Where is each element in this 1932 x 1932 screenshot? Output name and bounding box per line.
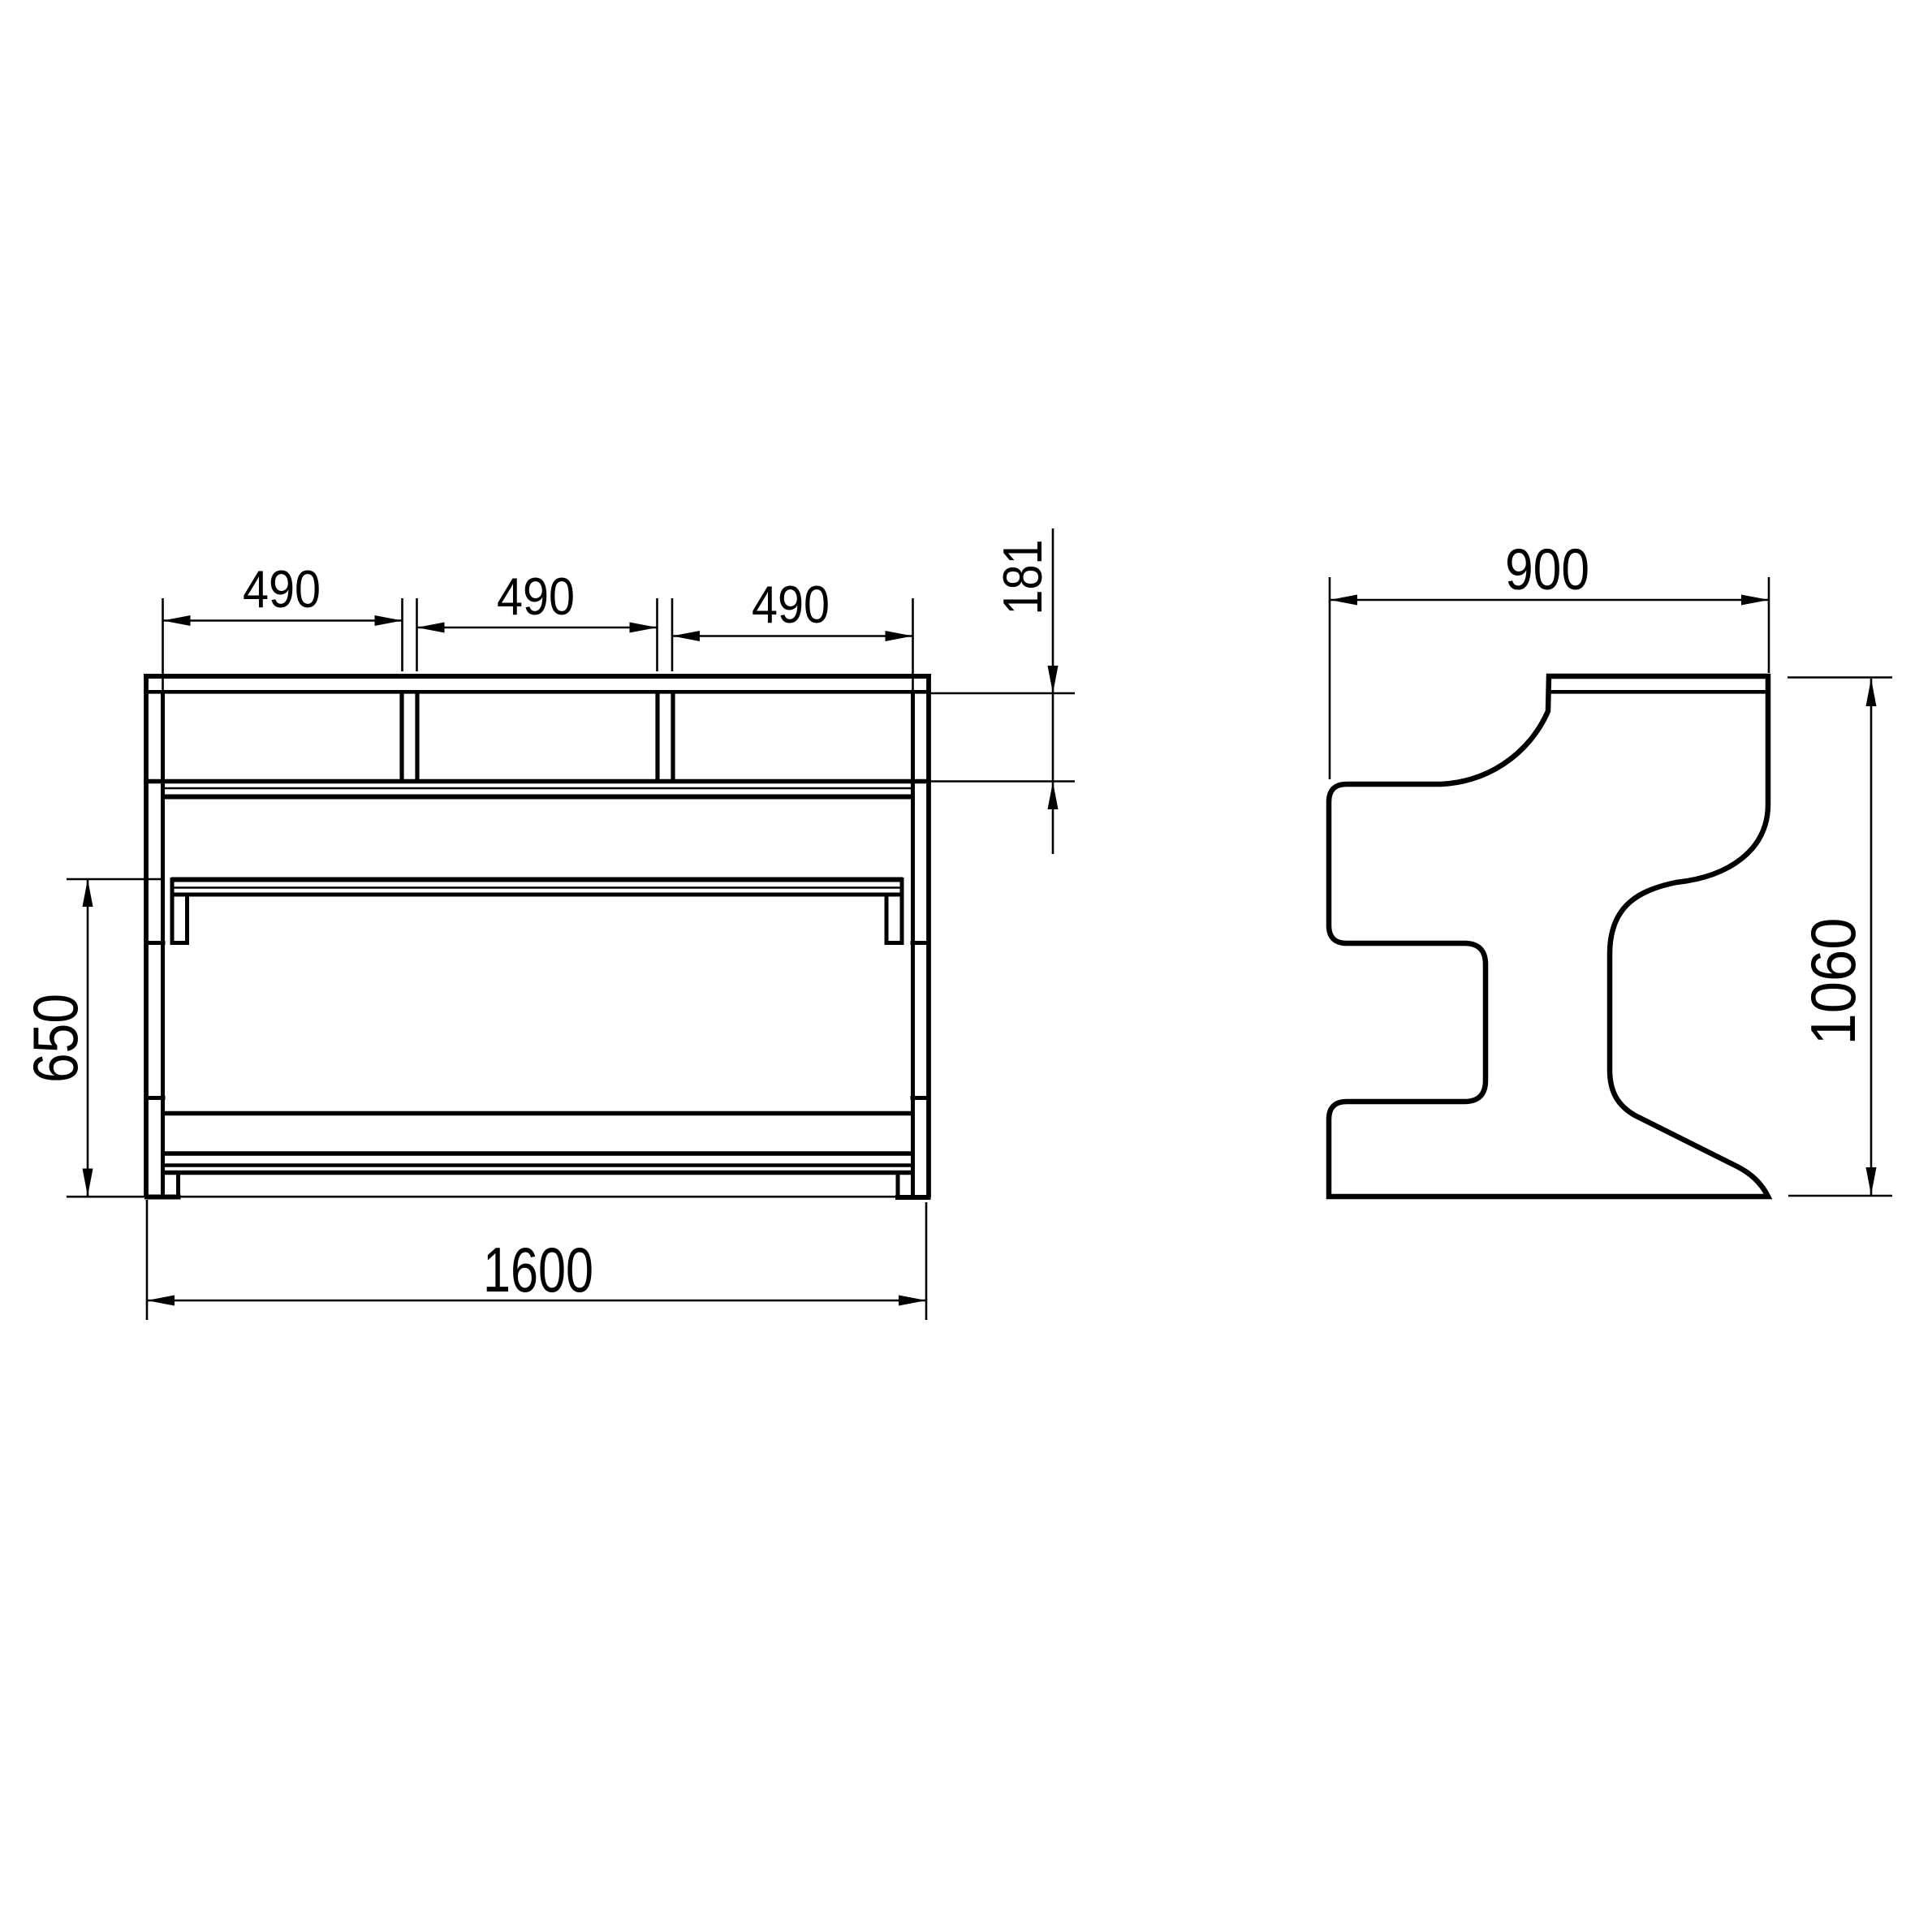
svg-text:1600: 1600: [483, 1234, 593, 1305]
svg-text:650: 650: [19, 994, 91, 1083]
svg-text:490: 490: [243, 559, 321, 619]
svg-text:490: 490: [752, 575, 830, 634]
svg-text:1060: 1060: [1797, 918, 1869, 1046]
svg-text:900: 900: [1505, 538, 1589, 602]
svg-text:181: 181: [992, 540, 1054, 615]
svg-text:490: 490: [497, 567, 575, 626]
